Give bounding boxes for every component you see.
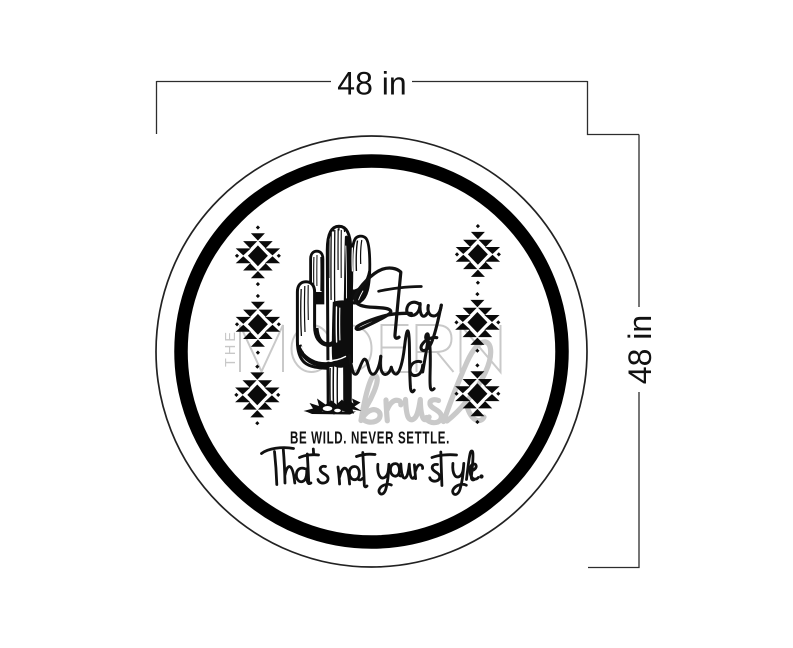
svg-text:48 in: 48 in [622,315,658,384]
svg-text:BE WILD. NEVER SETTLE.: BE WILD. NEVER SETTLE. [290,429,450,448]
svg-text:THE: THE [223,329,239,367]
svg-text:48 in: 48 in [337,65,406,101]
